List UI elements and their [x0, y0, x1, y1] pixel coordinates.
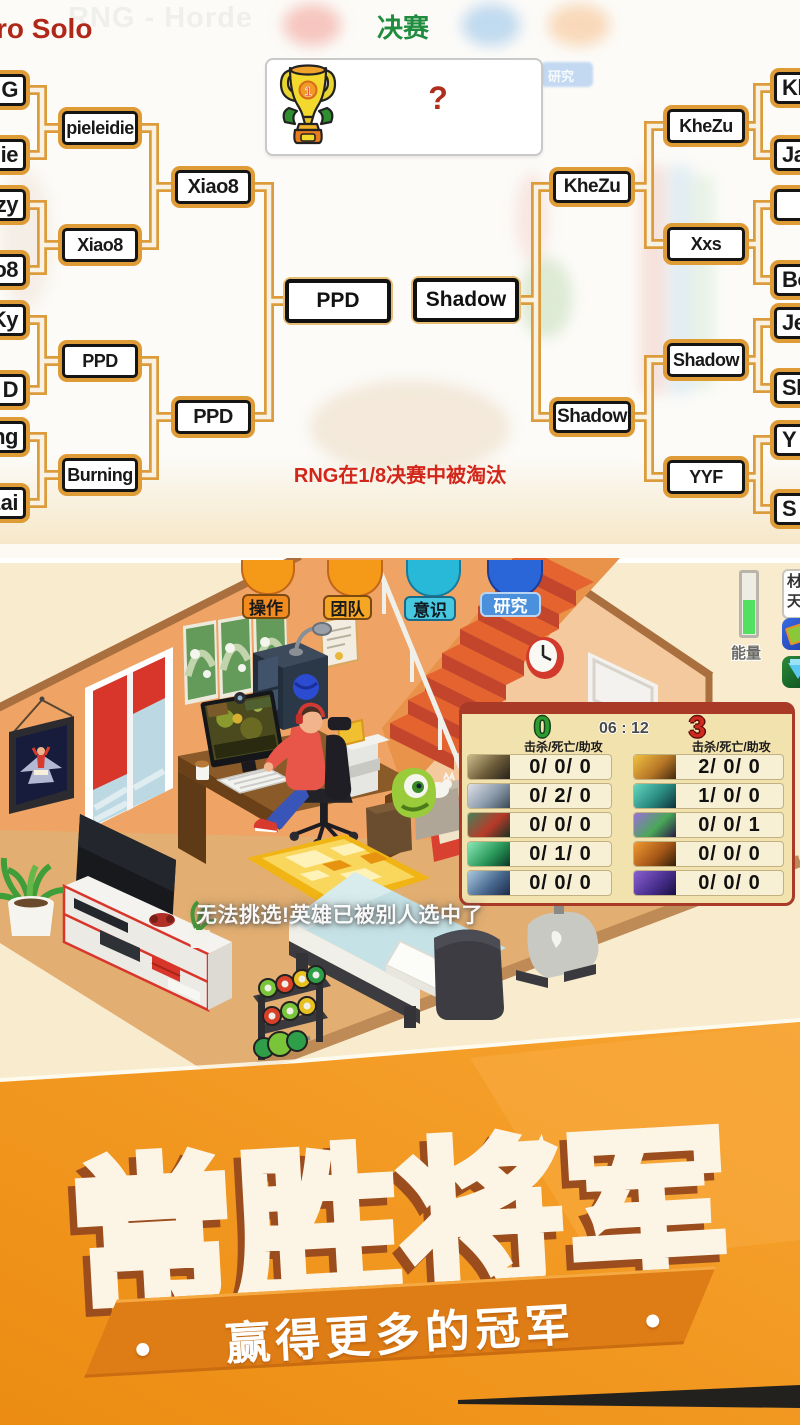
svg-text:1: 1 [304, 84, 311, 99]
